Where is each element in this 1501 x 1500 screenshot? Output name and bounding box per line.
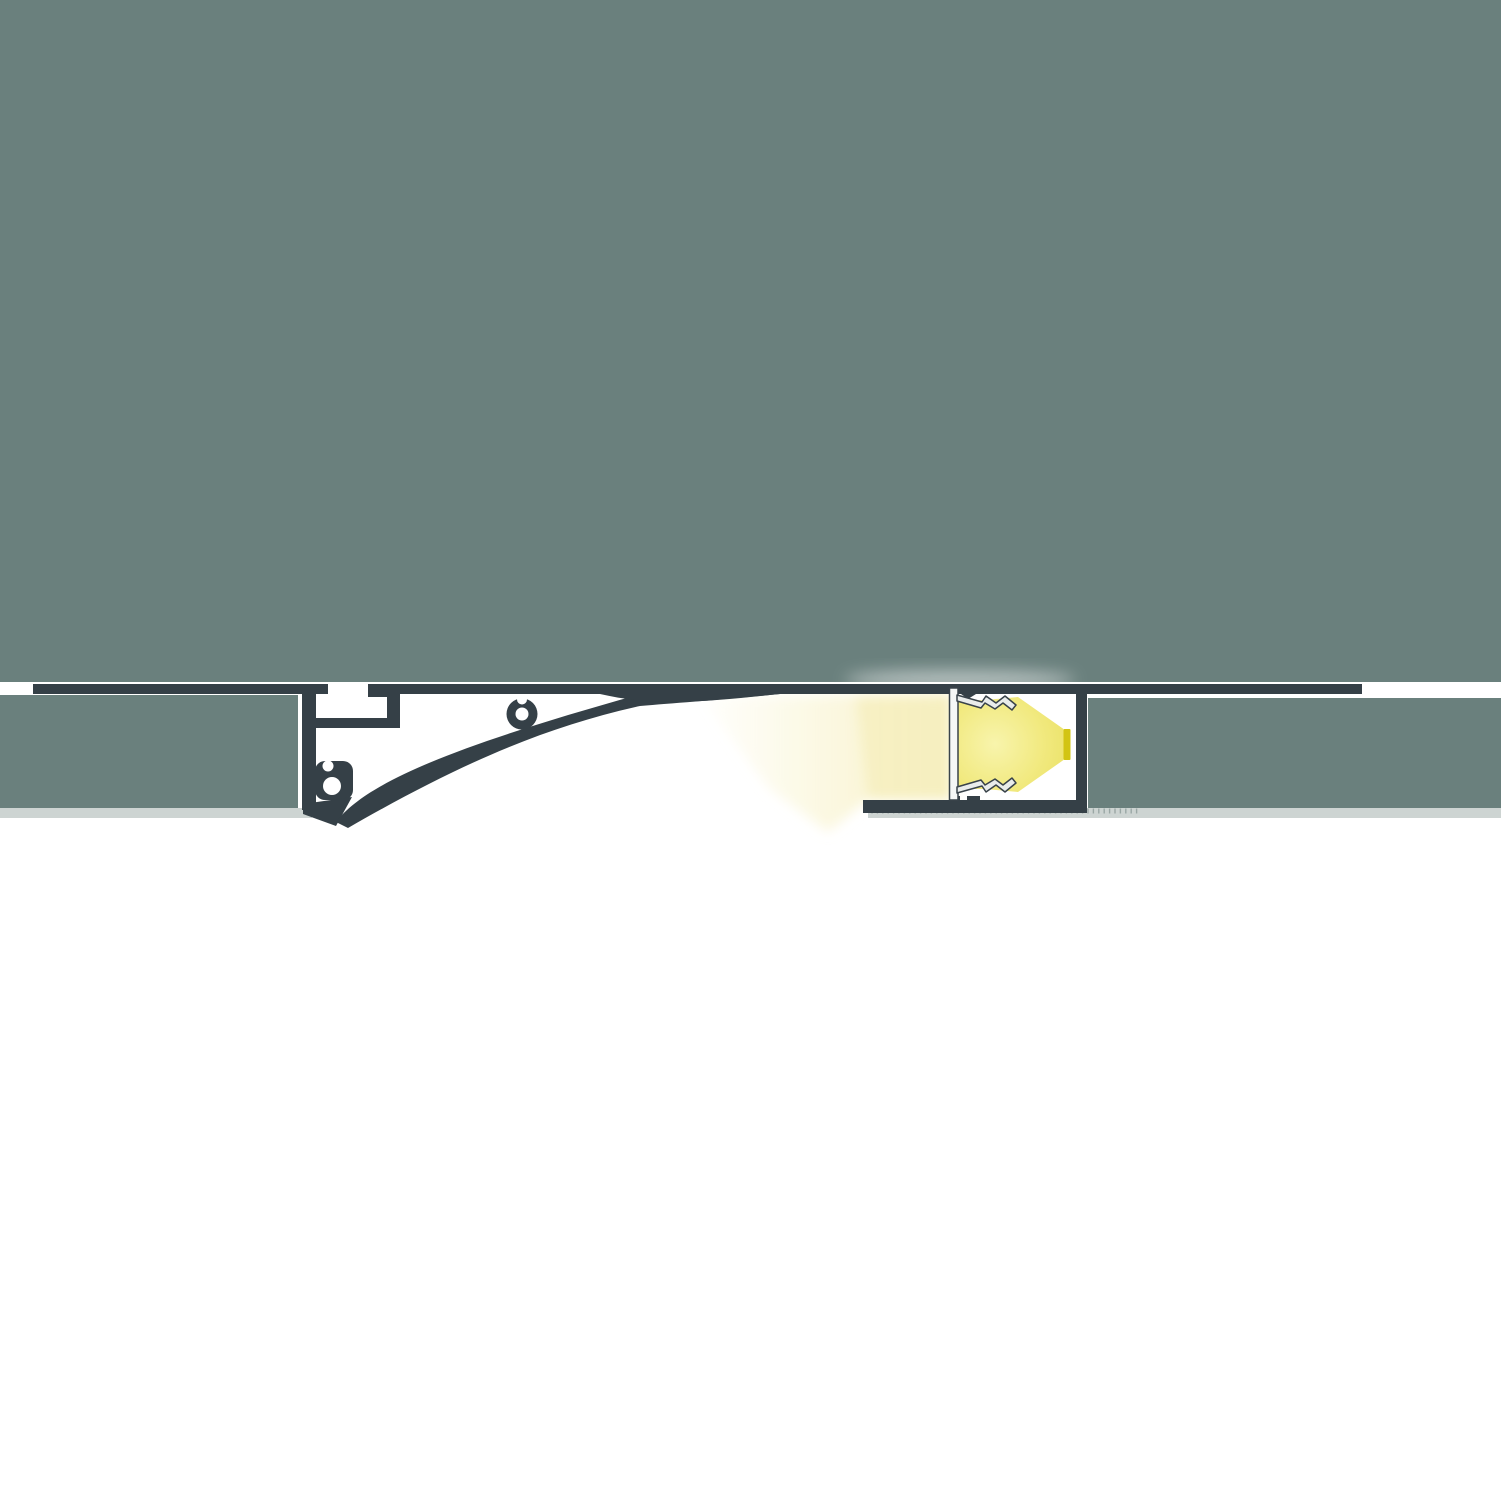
pocket-bottom-flange: [863, 800, 1087, 813]
clip-upper-bore: [516, 708, 529, 721]
ceiling-panel: [0, 0, 1501, 682]
channel-bottom-stop-2: [967, 796, 980, 801]
profile-fixing-flange: [315, 718, 400, 728]
clip-lower-bore: [323, 777, 341, 795]
led-strip: [1064, 729, 1071, 760]
clip-lower-opening: [323, 761, 334, 772]
shadow-gap-line-right: [368, 684, 1362, 694]
profile-spine: [302, 684, 316, 810]
clip-upper-opening: [517, 695, 527, 705]
cove-lighting-diagram: [0, 0, 1501, 1500]
drywall-panel-left: [0, 695, 298, 808]
plasterboard-edge-left: [0, 808, 312, 818]
pocket-side-wall: [1076, 684, 1087, 813]
drywall-panel-right: [1088, 698, 1501, 808]
glow-inner: [856, 694, 952, 800]
led-channel-back-plate: [950, 688, 959, 800]
shadow-gap-line-left: [33, 684, 328, 694]
diagram-svg: [0, 0, 1501, 1500]
